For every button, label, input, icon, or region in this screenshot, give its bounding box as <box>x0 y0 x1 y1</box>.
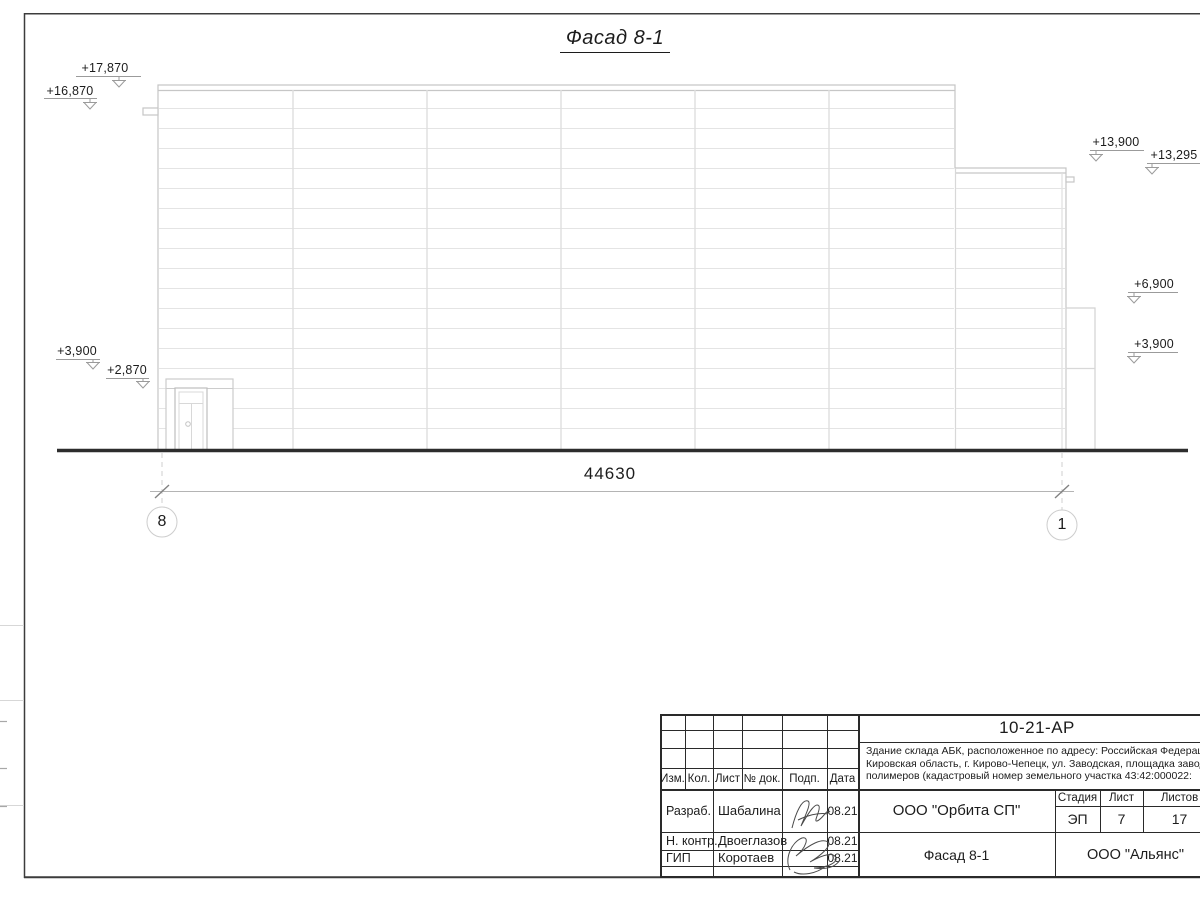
elevation-mark-17870: +17,870 <box>72 61 138 75</box>
grid-line <box>782 714 783 878</box>
grid-line <box>660 748 858 749</box>
title-block: Изм. Кол. Лист № док. Подп. Дата Разраб.… <box>660 714 1200 878</box>
axis-bubble-1: 1 <box>1047 516 1077 534</box>
role-label: ГИП <box>666 850 716 866</box>
sheets-value: 17 <box>1143 806 1200 832</box>
elevation-mark-13900: +13,900 <box>1088 135 1144 149</box>
project-description-line1: Здание склада АБК, расположенное по адре… <box>866 745 1200 758</box>
entrance-door <box>166 379 233 450</box>
company-name: ООО "Орбита СП" <box>858 790 1055 832</box>
sheet-title: Фасад 8-1 <box>480 27 750 53</box>
elevation-mark-16870: +16,870 <box>42 84 98 98</box>
building-outline <box>143 85 1095 450</box>
panel-joints-horizontal <box>159 109 1065 429</box>
role-name: Коротаев <box>718 850 782 866</box>
col-header-podp: Подп. <box>782 768 827 790</box>
role-label: Разраб. <box>666 790 716 832</box>
col-header-kol: Кол. <box>685 768 713 790</box>
role-name: Двоеглазов <box>718 832 782 850</box>
elevation-mark-3900-left: +3,900 <box>53 344 101 358</box>
drawing-title: Фасад 8-1 <box>858 832 1055 878</box>
elevation-mark-13295: +13,295 <box>1146 148 1200 162</box>
role-date: 08.21 <box>827 832 858 850</box>
drawing-sheet: Фасад 8-1 +17,870 +16,870 +3,900 +2,870 … <box>0 0 1200 900</box>
title-block-border <box>660 714 662 878</box>
elevation-symbols <box>44 77 1200 389</box>
col-header-data: Дата <box>827 768 858 790</box>
dimension-value: 44630 <box>555 464 665 484</box>
role-name: Шабалина <box>718 790 782 832</box>
stage-header: Стадия <box>1055 790 1100 806</box>
margin-stamp-marks <box>0 722 7 807</box>
role-date: 08.21 <box>827 850 858 866</box>
role-label: Н. контр. <box>666 832 726 850</box>
elevation-mark-2870: +2,870 <box>104 363 150 377</box>
axis-bubble-8: 8 <box>147 513 177 531</box>
col-header-doc: № док. <box>742 768 782 790</box>
elevation-mark-6900: +6,900 <box>1129 277 1179 291</box>
grid-line <box>660 866 858 867</box>
contractor-name: ООО "Альянс" <box>1055 832 1200 878</box>
doc-number: 10-21-АР <box>858 714 1200 742</box>
grid-line <box>858 742 1200 743</box>
grid-line <box>660 730 858 731</box>
sheet-header: Лист <box>1100 790 1143 806</box>
col-header-list: Лист <box>713 768 742 790</box>
project-description-line3: полимеров (кадастровый номер земельного … <box>866 770 1200 783</box>
project-description-line2: Кировская область, г. Кирово-Чепецк, ул.… <box>866 758 1200 771</box>
sheets-header: Листов <box>1143 790 1200 806</box>
sheet-value: 7 <box>1100 806 1143 832</box>
signature-shabalina <box>792 801 830 828</box>
margin-stamp-lines <box>0 626 24 806</box>
col-header-izm: Изм. <box>660 768 685 790</box>
stage-value: ЭП <box>1055 806 1100 832</box>
panel-joints-vertical <box>293 90 829 449</box>
elevation-mark-3900-right: +3,900 <box>1129 337 1179 351</box>
role-date: 08.21 <box>827 790 858 832</box>
